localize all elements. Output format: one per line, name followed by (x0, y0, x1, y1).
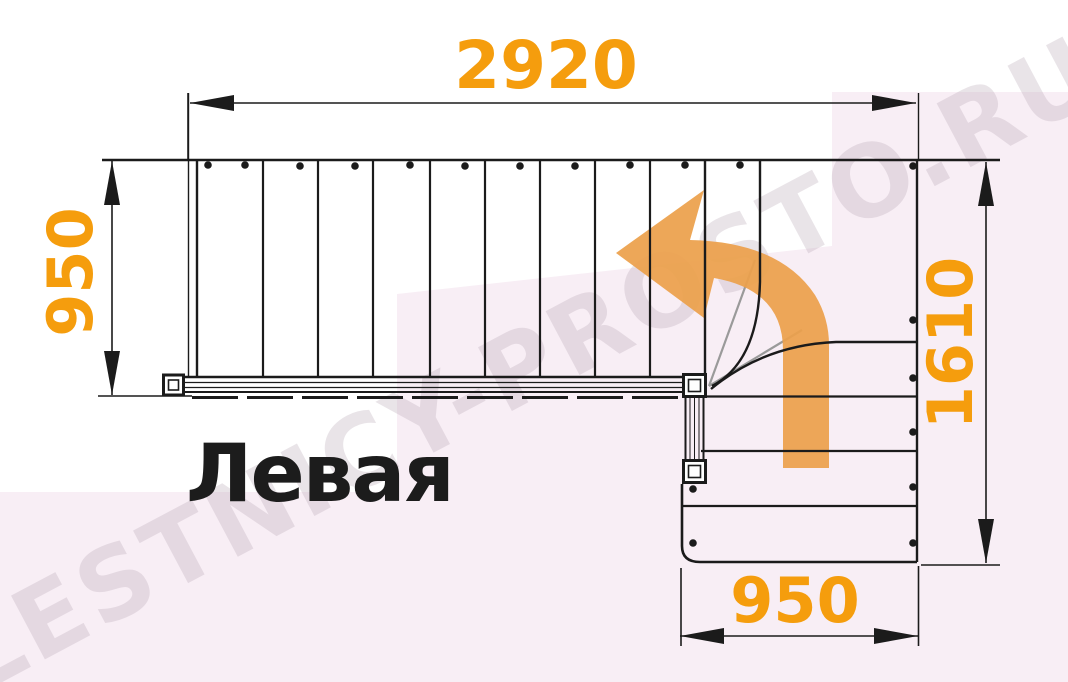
stair-plan-canvas: LESTNICY-PROSTO.RU (0, 0, 1068, 682)
plan-variant-title: Левая (186, 434, 453, 514)
left-newel-post (164, 375, 184, 395)
dimension-left-label: 950 (40, 207, 102, 336)
dimension-right-label: 1610 (920, 257, 982, 430)
second-newel-post (684, 461, 706, 483)
central-newel-post (684, 375, 706, 397)
lower-handrail (686, 397, 704, 460)
upper-handrail (98, 377, 683, 398)
dimension-top-label: 2920 (454, 33, 638, 99)
dimension-bottom-label: 950 (730, 570, 859, 632)
direction-arrow (616, 190, 829, 468)
upper-flight (189, 93, 651, 377)
